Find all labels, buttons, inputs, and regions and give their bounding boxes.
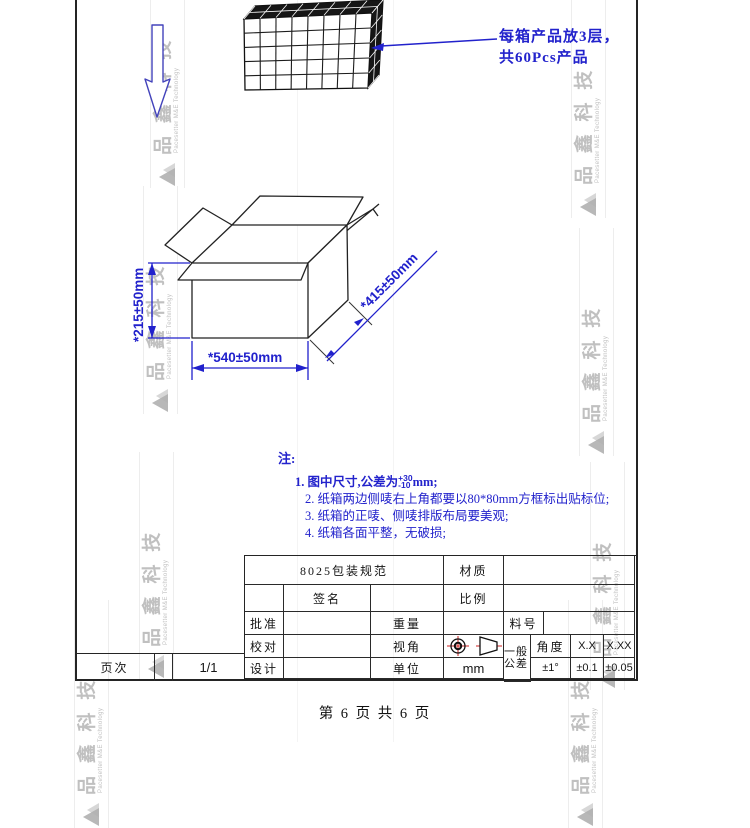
stack-annotation-line2: 共60Pcs产品 xyxy=(499,48,620,69)
frame-left-border xyxy=(75,0,77,681)
spec-sheet-page: { "annotation": { "line1": "每箱产品放3层，", "… xyxy=(0,0,750,742)
signature-label: 签名 xyxy=(284,585,371,612)
part-no-value-cell xyxy=(544,612,635,635)
tolerance-stack: +30-10 xyxy=(398,475,412,489)
dimension-height-text: *215±50mm xyxy=(131,268,146,342)
dimension-width-text: *540±50mm xyxy=(208,350,282,365)
scale-label: 比例 xyxy=(444,585,504,612)
stack-annotation-line1: 每箱产品放3层， xyxy=(499,27,620,48)
unit-value: mm xyxy=(444,658,504,679)
scale-value-cell xyxy=(504,585,635,612)
carton-drawing xyxy=(165,196,379,338)
approve-label: 批准 xyxy=(245,612,284,635)
tol-x-label: X.X xyxy=(571,635,604,658)
design-value-cell xyxy=(284,658,371,679)
material-value-cell xyxy=(504,556,635,585)
doc-title-cell: 8025包装规范 xyxy=(245,556,444,585)
carton-back-flap xyxy=(232,196,363,225)
page-index-label: 页次 xyxy=(75,654,155,681)
brand-triangle-icon xyxy=(81,802,99,826)
page-index-spacer xyxy=(155,654,173,681)
angle-label: 角度 xyxy=(531,635,571,658)
carton-front-face xyxy=(192,280,308,338)
tol-xx-label: X.XX xyxy=(604,635,635,658)
product-stack-drawing xyxy=(244,0,383,90)
signature-value-cell xyxy=(371,585,444,612)
signature-spacer-cell xyxy=(245,585,284,612)
note-item-1: 1. 图中尺寸,公差为+30-10mm; xyxy=(295,474,438,490)
projection-symbol-cell xyxy=(444,635,504,658)
tol-xx-value: ±0.05 xyxy=(604,658,635,679)
dimension-width: *540±50mm xyxy=(192,341,308,380)
carton-right-face xyxy=(308,225,348,338)
note-item-3: 3. 纸箱的正唛、侧唛排版布局要美观; xyxy=(305,508,508,524)
brand-triangle-icon xyxy=(575,802,593,826)
note-item-4: 4. 纸箱各面平整，无破损; xyxy=(305,525,446,541)
notes-header: 注: xyxy=(278,451,295,467)
weight-label: 重量 xyxy=(371,612,444,635)
carton-front-flap xyxy=(178,263,308,280)
unit-label: 单位 xyxy=(371,658,444,679)
leader-line xyxy=(371,39,497,51)
design-label: 设计 xyxy=(245,658,284,679)
material-label: 材质 xyxy=(444,556,504,585)
check-label: 校对 xyxy=(245,635,284,658)
page-footer: 第 6 页 共 6 页 xyxy=(0,702,750,723)
angle-tol-value: ±1° xyxy=(531,658,571,679)
page-index-strip: 页次 1/1 xyxy=(75,653,244,681)
note-item-2: 2. 纸箱两边侧唛右上角都要以80*80mm方框标出贴标位; xyxy=(305,491,609,507)
part-no-label: 料号 xyxy=(504,612,544,635)
tol-x-value: ±0.1 xyxy=(571,658,604,679)
notes-block: 注: 1. 图中尺寸,公差为+30-10mm; 2. 纸箱两边侧唛右上角都要以8… xyxy=(278,451,295,467)
check-value-cell xyxy=(284,635,371,658)
view-angle-label: 视角 xyxy=(371,635,444,658)
approve-value-cell xyxy=(284,612,371,635)
stack-annotation: 每箱产品放3层， 共60Pcs产品 xyxy=(499,27,620,69)
dimension-depth-text: *415±50mm xyxy=(358,250,421,313)
weight-value-cell xyxy=(444,612,504,635)
general-tol-label: 一般公差 xyxy=(504,635,531,682)
first-angle-projection-icon xyxy=(445,635,503,657)
carton-left-flap xyxy=(165,208,232,263)
dimension-height: *215±50mm xyxy=(131,263,190,342)
title-block: 8025包装规范 材质 签名 比例 批准 重量 料号 校对 视角 一般公差 角度… xyxy=(244,555,637,681)
down-arrow-icon xyxy=(145,25,170,117)
page-index-value: 1/1 xyxy=(173,654,244,681)
carton-right-flap-tip xyxy=(373,204,379,216)
